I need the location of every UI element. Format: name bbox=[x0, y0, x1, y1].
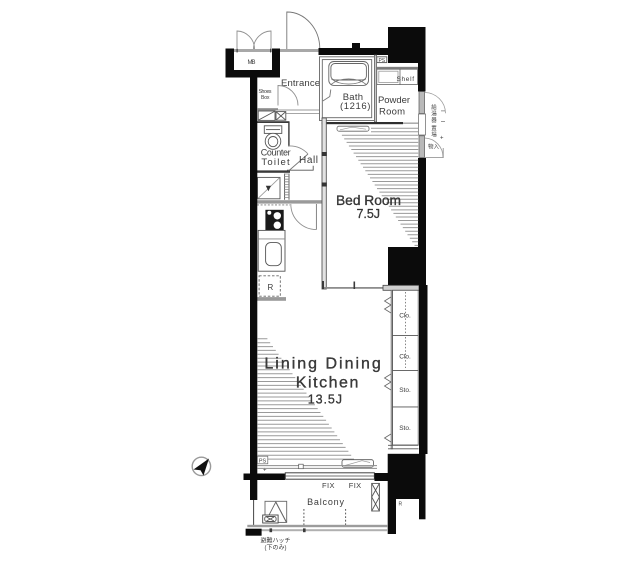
svg-text:避難ハッチ: 避難ハッチ bbox=[260, 537, 290, 545]
svg-text:R: R bbox=[399, 502, 403, 508]
svg-text:R: R bbox=[268, 283, 274, 292]
svg-text:PS: PS bbox=[378, 58, 385, 64]
svg-text:Powder: Powder bbox=[378, 95, 410, 106]
svg-text:(1216): (1216) bbox=[340, 101, 370, 112]
svg-text:Room: Room bbox=[379, 107, 405, 118]
svg-text:Shelf: Shelf bbox=[397, 76, 415, 83]
svg-text:MB: MB bbox=[248, 60, 256, 66]
svg-text:Sto.: Sto. bbox=[399, 387, 411, 394]
svg-text:7.5J: 7.5J bbox=[357, 207, 381, 221]
svg-text:物入: 物入 bbox=[428, 143, 440, 151]
svg-text:Toilet: Toilet bbox=[261, 157, 290, 168]
svg-text:+: + bbox=[440, 136, 444, 142]
svg-text:PS: PS bbox=[259, 459, 267, 465]
svg-text:Box: Box bbox=[261, 95, 270, 101]
svg-text:Sto.: Sto. bbox=[399, 425, 411, 432]
svg-text:Bed Room: Bed Room bbox=[336, 193, 401, 208]
svg-text:13.5J: 13.5J bbox=[308, 392, 342, 406]
svg-text:場: 場 bbox=[431, 131, 437, 139]
svg-text:給: 給 bbox=[431, 103, 437, 111]
svg-text:置: 置 bbox=[431, 125, 437, 132]
svg-text:FIX: FIX bbox=[349, 481, 362, 490]
svg-text:湯: 湯 bbox=[431, 110, 437, 118]
svg-text:Balcony: Balcony bbox=[307, 497, 344, 507]
svg-text:器: 器 bbox=[431, 117, 437, 124]
svg-text:Clo.: Clo. bbox=[399, 354, 411, 361]
svg-text:(下のみ): (下のみ) bbox=[265, 545, 287, 552]
svg-text:Lining Dining: Lining Dining bbox=[264, 355, 380, 372]
svg-text:FIX: FIX bbox=[322, 481, 335, 490]
svg-text:Hall: Hall bbox=[299, 155, 318, 166]
svg-text:Clo.: Clo. bbox=[399, 313, 411, 320]
